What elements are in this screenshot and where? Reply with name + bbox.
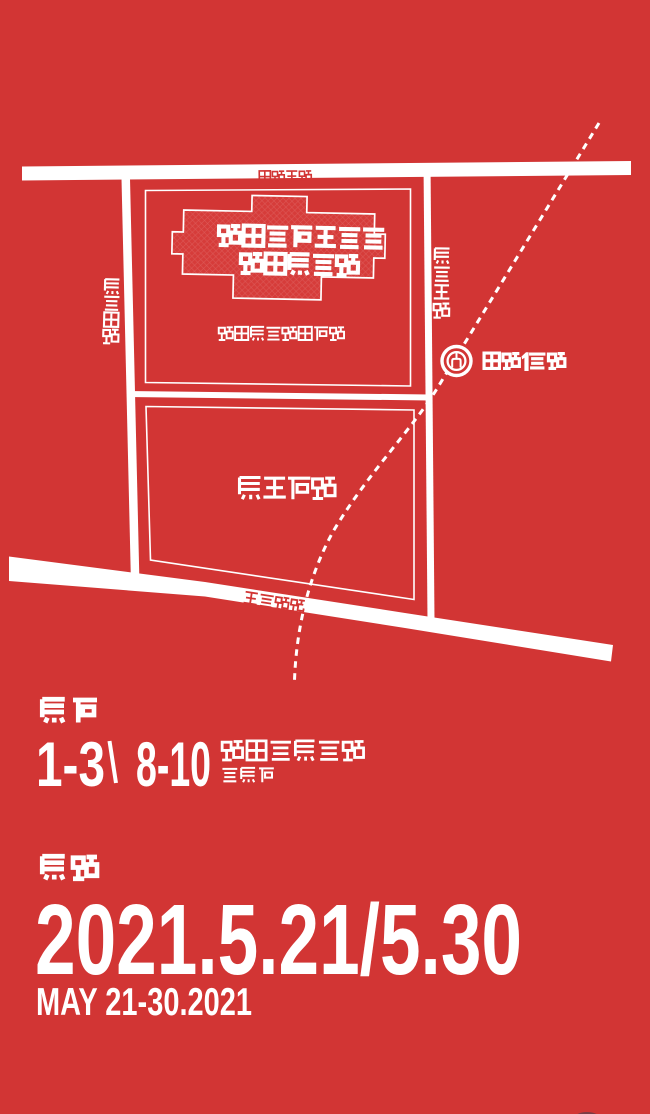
- svg-text:2021.5.21/5.30: 2021.5.21/5.30: [35, 884, 522, 996]
- svg-text:8-10: 8-10: [136, 730, 211, 800]
- svg-text:MAY 21-30.2021: MAY 21-30.2021: [36, 981, 252, 1024]
- svg-text:1-3: 1-3: [36, 730, 105, 800]
